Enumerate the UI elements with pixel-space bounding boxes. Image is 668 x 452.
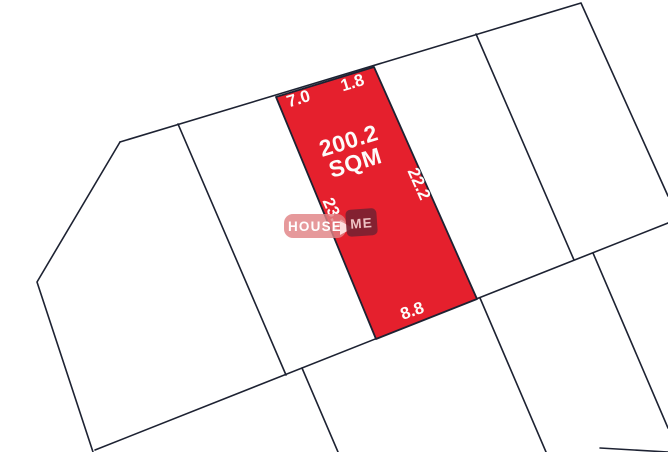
bottom-corner-boundary-segment — [600, 448, 668, 452]
plot-divider-right — [476, 34, 574, 260]
watermark-house-text: HOUSE — [288, 219, 342, 234]
lower-plot-divider-1 — [302, 368, 338, 452]
watermark-me-text: ME — [350, 215, 374, 232]
land-plot-map: 7.0 1.8 22.2 23.1 8.8 200.2 SQM HOUSE ME — [0, 0, 668, 452]
plot-divider-left — [178, 124, 286, 375]
lower-plot-divider-2 — [480, 298, 546, 452]
subdivision-plan-canvas: 7.0 1.8 22.2 23.1 8.8 200.2 SQM HOUSE ME — [0, 0, 668, 452]
lower-plot-divider-3 — [593, 253, 668, 428]
highlighted-plot[interactable] — [276, 67, 477, 339]
left-boundary-line — [37, 142, 120, 452]
